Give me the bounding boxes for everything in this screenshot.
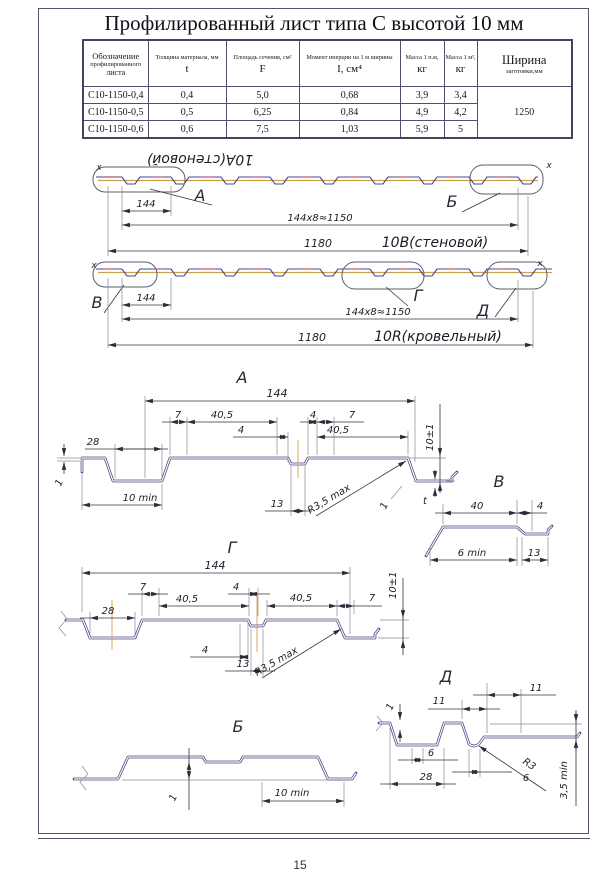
detail-title: Б	[233, 717, 244, 736]
dim-28: 28	[87, 437, 100, 448]
dim-40-5: 40,5	[176, 594, 198, 605]
dim-pitch: 144	[136, 199, 155, 210]
zone-label-b: Б	[447, 192, 458, 211]
radius-leader	[262, 629, 341, 678]
profile-drawings: x x 10А(стеновой) А Б 144 144х8≈1150 118…	[0, 0, 600, 885]
drawing-sheet: Профилированный лист типа С высотой 10 м…	[0, 0, 600, 885]
dim-1: 1	[167, 793, 180, 803]
detail-title: В	[494, 472, 505, 491]
zone-v-leader	[104, 285, 124, 313]
dim-4: 4	[310, 410, 316, 421]
dim-1: 1	[384, 702, 397, 712]
dim-pitch-total: 144х8≈1150	[287, 213, 352, 224]
profile-section-inner	[74, 757, 356, 779]
dim-height: 10±1	[425, 424, 436, 451]
zone-g-leader	[386, 287, 408, 306]
dim-7: 7	[175, 410, 182, 421]
detail-d: Д 1 11 11 6 28 6 R3 3,5 min	[376, 667, 582, 806]
dim-13: 13	[528, 548, 541, 559]
dim-7: 7	[369, 593, 376, 604]
detail-v: В 40 4 6 min 13	[426, 472, 552, 566]
dim-overall: 144	[205, 559, 226, 572]
dim-6: 6	[523, 773, 529, 784]
extension-lines	[57, 396, 455, 516]
axis-mark: x	[90, 261, 97, 271]
zone-d-leader	[495, 288, 516, 317]
break-line	[59, 611, 67, 636]
dim-28: 28	[102, 606, 115, 617]
dim-28: 28	[420, 772, 433, 783]
profile-section-inner	[66, 620, 379, 638]
dim-radius: R3	[520, 756, 537, 773]
dim-11: 11	[433, 696, 446, 707]
strip-label: 10В(стеновой)	[382, 235, 488, 251]
dim-11: 11	[530, 683, 543, 694]
profile-section	[74, 757, 356, 779]
dim-13: 13	[237, 659, 250, 670]
strip-wall: x x 10А(стеновой) А Б 144 144х8≈1150 118…	[93, 151, 552, 256]
dim-overall: 1180	[298, 331, 326, 344]
zone-b-leader	[462, 193, 500, 212]
dim-radius: R3,5 max	[253, 645, 300, 678]
zone-label-d: Д	[476, 301, 490, 320]
dim-height: 10±1	[388, 572, 399, 599]
dim-pitch: 144	[136, 293, 155, 304]
dim-6: 6	[428, 748, 434, 759]
detail-title: Г	[228, 538, 238, 557]
zone-label-v: В	[92, 293, 103, 312]
dim-4: 4	[233, 582, 239, 593]
dim-7: 7	[349, 410, 356, 421]
axis-mark: x	[536, 259, 543, 269]
dim-40-5: 40,5	[327, 425, 349, 436]
dim-7: 7	[140, 582, 147, 593]
zone-label-a: А	[194, 186, 206, 205]
profile-section-inner	[379, 723, 580, 746]
dim-40-5: 40,5	[290, 593, 312, 604]
dim-4: 4	[238, 425, 244, 436]
detail-zone-v-oval	[93, 262, 157, 287]
leader	[391, 486, 402, 499]
axis-mark: x	[95, 163, 102, 173]
detail-g: Г 144 7 4 40,5 40,5 7 28 4 13	[59, 538, 409, 679]
detail-zone-b-oval	[470, 165, 543, 194]
radius-leader	[316, 461, 406, 516]
detail-b: Б 1 10 min	[74, 717, 356, 810]
flipped-strip-label: 10А(стеновой)	[147, 151, 253, 167]
dim-1: 1	[378, 501, 391, 511]
dim-pitch-total: 144х8≈1150	[345, 307, 410, 318]
dim-overall: 144	[267, 387, 288, 400]
profile-section	[82, 458, 457, 481]
dim-40-5: 40,5	[211, 410, 233, 421]
dim-radius: R3,5 max	[306, 482, 353, 516]
profile-section-inner	[82, 458, 457, 481]
radius-leader	[479, 746, 546, 791]
dim-t: t	[423, 496, 428, 507]
strip-roof: x x В Г Д 144 144х8≈1150 1180 10R(кровел…	[90, 259, 552, 348]
axis-mark: x	[545, 161, 552, 171]
page-number: 15	[270, 858, 330, 872]
dim-13: 13	[271, 499, 284, 510]
dim-10min: 10 min	[275, 788, 310, 799]
profile-section	[66, 620, 379, 638]
detail-title: Д	[439, 667, 453, 686]
dim-1: 1	[53, 478, 66, 488]
dim-4: 4	[537, 501, 543, 512]
zone-label-g: Г	[414, 286, 424, 305]
dim-40: 40	[471, 501, 484, 512]
dim-height: 3,5 min	[559, 761, 570, 799]
dim-10min: 10 min	[123, 493, 158, 504]
strip-label: 10R(кровельный)	[374, 329, 502, 345]
dim-overall: 1180	[304, 237, 332, 250]
detail-title: А	[236, 368, 248, 387]
dim-6min: 6 min	[458, 548, 486, 559]
dim-4: 4	[202, 645, 208, 656]
detail-a: А 144 7 40,5 4 7 4 40,5 28 13 10 mi	[53, 368, 457, 517]
